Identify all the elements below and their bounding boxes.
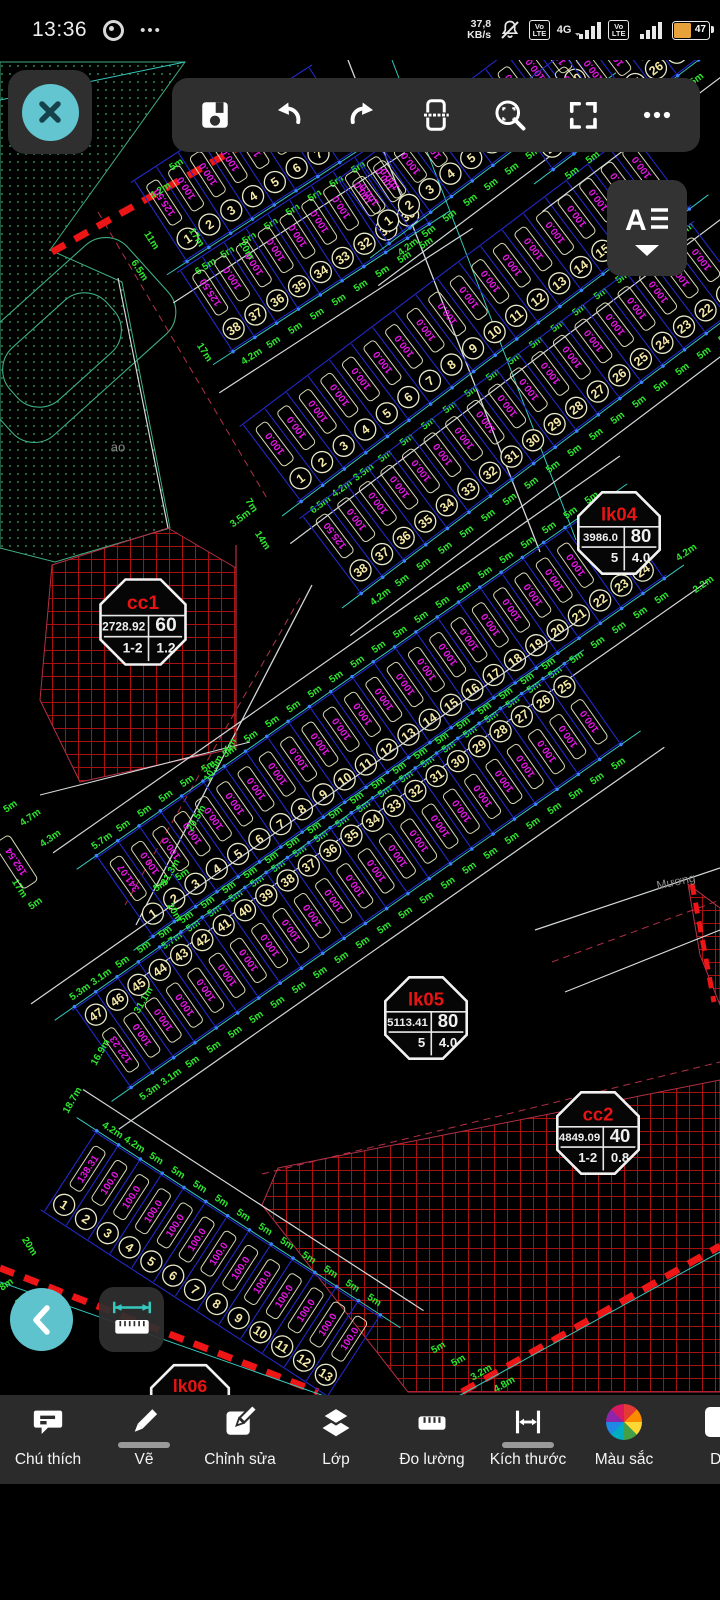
svg-text:5m: 5m xyxy=(248,1009,266,1026)
svg-text:4.2m: 4.2m xyxy=(122,1134,147,1156)
tool-palette[interactable]: Màu sắc xyxy=(576,1395,672,1484)
text-style-icon: A xyxy=(624,201,670,237)
battery-level: 47 xyxy=(695,24,706,35)
svg-text:5m: 5m xyxy=(354,934,372,951)
tool-label: Đo lường xyxy=(399,1451,464,1469)
svg-text:80: 80 xyxy=(438,1010,459,1031)
app-screen: 125.5016.5m100.025m100.035m100.045m100.0… xyxy=(0,0,720,1600)
svg-text:4.0: 4.0 xyxy=(439,1035,457,1050)
redo-button[interactable] xyxy=(336,89,388,141)
svg-text:5m: 5m xyxy=(674,361,692,379)
svg-text:5m: 5m xyxy=(695,345,713,363)
svg-text:5m: 5m xyxy=(1,798,19,815)
svg-text:3.1m: 3.1m xyxy=(89,966,114,988)
svg-text:5m: 5m xyxy=(463,383,481,401)
close-icon xyxy=(22,84,78,140)
svg-text:cc2: cc2 xyxy=(583,1104,614,1125)
svg-text:5m: 5m xyxy=(587,426,605,444)
svg-text:5m: 5m xyxy=(439,875,457,892)
zone-badge-cc2: cc24849.09401-20.8 xyxy=(557,1092,638,1173)
pencil-icon xyxy=(127,1403,161,1441)
svg-text:5m: 5m xyxy=(482,845,500,862)
svg-text:4849.09: 4849.09 xyxy=(559,1132,600,1144)
svg-text:5m: 5m xyxy=(570,301,588,319)
svg-text:5m: 5m xyxy=(524,815,542,832)
svg-text:3986.0: 3986.0 xyxy=(583,532,618,544)
svg-text:5m: 5m xyxy=(376,447,394,465)
svg-text:6.5m: 6.5m xyxy=(308,494,333,517)
svg-text:cc1: cc1 xyxy=(127,593,159,614)
network-speed: 37,8 KB/s xyxy=(467,19,491,41)
svg-text:0.8: 0.8 xyxy=(611,1150,629,1165)
close-button[interactable] xyxy=(22,84,79,141)
svg-text:4.3m: 4.3m xyxy=(38,828,63,850)
svg-text:14m: 14m xyxy=(252,529,272,552)
back-button[interactable] xyxy=(10,1288,73,1351)
svg-text:5m: 5m xyxy=(375,919,393,936)
zone-badge-lk05: lk055113.418054.0 xyxy=(385,977,466,1058)
svg-text:3.5m: 3.5m xyxy=(351,461,376,484)
chevron-left-icon xyxy=(11,1289,73,1351)
svg-text:5m: 5m xyxy=(527,334,545,352)
svg-text:5m: 5m xyxy=(205,1039,223,1056)
svg-text:5m: 5m xyxy=(311,964,329,981)
notification-dots-icon: ••• xyxy=(140,22,162,39)
svg-text:4.0: 4.0 xyxy=(632,550,650,565)
svg-text:4.2m: 4.2m xyxy=(330,477,355,500)
partial-icon xyxy=(705,1403,720,1441)
network-type: 4G xyxy=(557,24,572,36)
fullscreen-button[interactable] xyxy=(557,89,609,141)
text-style-button[interactable]: A xyxy=(607,180,687,276)
svg-text:4.2m: 4.2m xyxy=(674,542,699,564)
zone-badge-lk04: lk043986.08054.0 xyxy=(578,492,659,573)
svg-text:5.3m: 5.3m xyxy=(68,981,93,1003)
svg-text:5m: 5m xyxy=(523,475,541,493)
battery-icon: 47 xyxy=(672,21,710,40)
svg-text:80: 80 xyxy=(631,525,652,546)
svg-text:5.7m: 5.7m xyxy=(90,830,115,852)
bottom-toolbar: Chú thíchVẽChỉnh sửaLớpĐo lườngKích thướ… xyxy=(0,1395,720,1484)
svg-text:5m: 5m xyxy=(26,895,44,912)
svg-text:5m: 5m xyxy=(419,415,437,433)
svg-text:5.3m: 5.3m xyxy=(138,1081,163,1103)
layers-icon xyxy=(318,1403,354,1441)
tool-layers[interactable]: Lớp xyxy=(288,1395,384,1484)
tool-label: Chỉnh sửa xyxy=(204,1451,276,1469)
svg-text:5m: 5m xyxy=(436,539,454,557)
svg-text:5m: 5m xyxy=(609,410,627,428)
zone-badge-cc1: cc12728.92601-21.2 xyxy=(101,580,186,665)
palette-icon xyxy=(606,1403,642,1441)
svg-text:5m: 5m xyxy=(503,160,521,178)
svg-text:5: 5 xyxy=(418,1035,425,1050)
svg-text:5m: 5m xyxy=(610,619,628,636)
svg-text:5m: 5m xyxy=(290,979,308,996)
close-card xyxy=(8,70,92,154)
svg-text:1-2: 1-2 xyxy=(578,1150,597,1165)
tool-edit[interactable]: Chỉnh sửa xyxy=(192,1395,288,1484)
svg-text:5m: 5m xyxy=(441,207,459,225)
chrome-icon xyxy=(103,20,124,41)
svg-text:17m: 17m xyxy=(194,341,214,364)
tool-label: Du xyxy=(710,1451,720,1469)
svg-text:2728.92: 2728.92 xyxy=(102,619,146,633)
svg-text:5m: 5m xyxy=(567,785,585,802)
svg-text:5m: 5m xyxy=(652,377,670,395)
svg-text:5m: 5m xyxy=(269,994,287,1011)
tool-comment[interactable]: Chú thích xyxy=(0,1395,96,1484)
volte-badge-2: VoLTE xyxy=(608,20,629,40)
svg-text:5m: 5m xyxy=(226,1024,244,1041)
svg-text:4.2m: 4.2m xyxy=(368,586,393,609)
section-view-button[interactable] xyxy=(410,89,462,141)
svg-text:5m: 5m xyxy=(546,800,564,817)
svg-text:6.5m: 6.5m xyxy=(128,258,150,283)
active-tool-indicator xyxy=(502,1442,554,1448)
svg-text:5m: 5m xyxy=(592,285,610,303)
svg-text:5m: 5m xyxy=(588,770,606,787)
svg-text:lk04: lk04 xyxy=(601,504,638,525)
svg-text:2.2m: 2.2m xyxy=(691,574,716,596)
svg-text:4.2m: 4.2m xyxy=(100,1120,125,1142)
comment-icon xyxy=(30,1403,66,1441)
svg-text:5m: 5m xyxy=(568,649,586,666)
tool-label: Màu sắc xyxy=(595,1451,654,1469)
svg-text:4.7m: 4.7m xyxy=(18,807,43,829)
svg-text:5m: 5m xyxy=(630,393,648,411)
svg-text:5m: 5m xyxy=(461,860,479,877)
dimension-icon xyxy=(509,1403,547,1441)
svg-text:5m: 5m xyxy=(563,165,581,183)
svg-text:5m: 5m xyxy=(330,292,348,309)
svg-text:5m: 5m xyxy=(393,572,411,590)
tool-partial[interactable]: Du xyxy=(672,1395,720,1484)
mute-icon xyxy=(498,18,522,42)
svg-text:5m: 5m xyxy=(566,442,584,460)
svg-text:5m: 5m xyxy=(503,830,521,847)
signal-bars-2-icon xyxy=(636,20,662,40)
measure-tool-button[interactable] xyxy=(99,1287,164,1352)
svg-text:5m: 5m xyxy=(549,318,567,336)
svg-text:5m: 5m xyxy=(458,523,476,541)
drawing-toolbar xyxy=(172,78,700,152)
chevron-down-icon xyxy=(635,245,659,256)
svg-text:5m: 5m xyxy=(352,277,370,294)
svg-text:5m: 5m xyxy=(286,320,304,337)
svg-text:1-2: 1-2 xyxy=(123,640,143,655)
svg-text:5m: 5m xyxy=(184,1054,202,1071)
svg-text:5m: 5m xyxy=(484,366,502,384)
more-button[interactable] xyxy=(631,89,683,141)
svg-text:5m: 5m xyxy=(653,589,671,606)
ruler-icon xyxy=(413,1403,451,1441)
svg-text:5113.41: 5113.41 xyxy=(387,1017,428,1029)
svg-text:60: 60 xyxy=(155,615,176,636)
clock: 13:36 xyxy=(32,18,87,42)
edit-icon xyxy=(222,1403,258,1441)
svg-text:5: 5 xyxy=(611,550,618,565)
svg-text:5m: 5m xyxy=(418,889,436,906)
svg-text:1.2: 1.2 xyxy=(156,640,176,655)
svg-text:40: 40 xyxy=(610,1125,631,1146)
active-tool-indicator xyxy=(118,1442,170,1448)
svg-text:3.1m: 3.1m xyxy=(159,1066,184,1088)
svg-text:18.7m: 18.7m xyxy=(61,1085,85,1115)
svg-text:5m: 5m xyxy=(544,458,562,476)
svg-text:5m: 5m xyxy=(632,604,650,621)
zoom-window-button[interactable] xyxy=(484,89,536,141)
svg-text:5m: 5m xyxy=(415,556,433,574)
svg-text:5m: 5m xyxy=(462,192,480,210)
signal-bars-icon xyxy=(575,20,601,40)
svg-text:5m: 5m xyxy=(717,328,720,346)
android-nav-bar xyxy=(0,1484,720,1600)
svg-text:20m: 20m xyxy=(19,1235,39,1258)
tool-ruler[interactable]: Đo lường xyxy=(384,1395,480,1484)
svg-text:ao: ao xyxy=(111,440,125,455)
svg-text:A: A xyxy=(625,204,647,237)
svg-text:4.2m: 4.2m xyxy=(239,346,264,368)
svg-text:5m: 5m xyxy=(610,755,628,772)
tool-label: Kích thước xyxy=(490,1451,567,1469)
tool-dimension[interactable]: Kích thước xyxy=(480,1395,576,1484)
svg-text:16.9m: 16.9m xyxy=(89,1037,113,1067)
svg-text:5m: 5m xyxy=(482,176,500,194)
svg-text:5m: 5m xyxy=(398,431,416,449)
svg-text:lk06: lk06 xyxy=(173,1376,208,1396)
measure-icon xyxy=(109,1297,155,1343)
svg-text:5m: 5m xyxy=(441,399,459,417)
save-button[interactable] xyxy=(189,89,241,141)
svg-text:5m: 5m xyxy=(265,334,283,351)
tool-label: Chú thích xyxy=(15,1451,81,1469)
status-bar: 13:36 ••• 37,8 KB/s VoLTE 4G xyxy=(0,0,720,60)
svg-text:5m: 5m xyxy=(333,949,351,966)
tool-label: Vẽ xyxy=(135,1451,154,1469)
svg-text:11m: 11m xyxy=(141,229,161,251)
svg-text:5m: 5m xyxy=(308,306,326,323)
svg-text:5m: 5m xyxy=(479,507,497,525)
tool-pencil[interactable]: Vẽ xyxy=(96,1395,192,1484)
svg-text:5m: 5m xyxy=(589,634,607,651)
svg-text:17m: 17m xyxy=(9,877,29,900)
svg-text:lk05: lk05 xyxy=(408,989,444,1010)
undo-button[interactable] xyxy=(263,89,315,141)
tool-label: Lớp xyxy=(322,1451,349,1469)
svg-text:5m: 5m xyxy=(397,904,415,921)
volte-badge: VoLTE xyxy=(529,20,550,40)
